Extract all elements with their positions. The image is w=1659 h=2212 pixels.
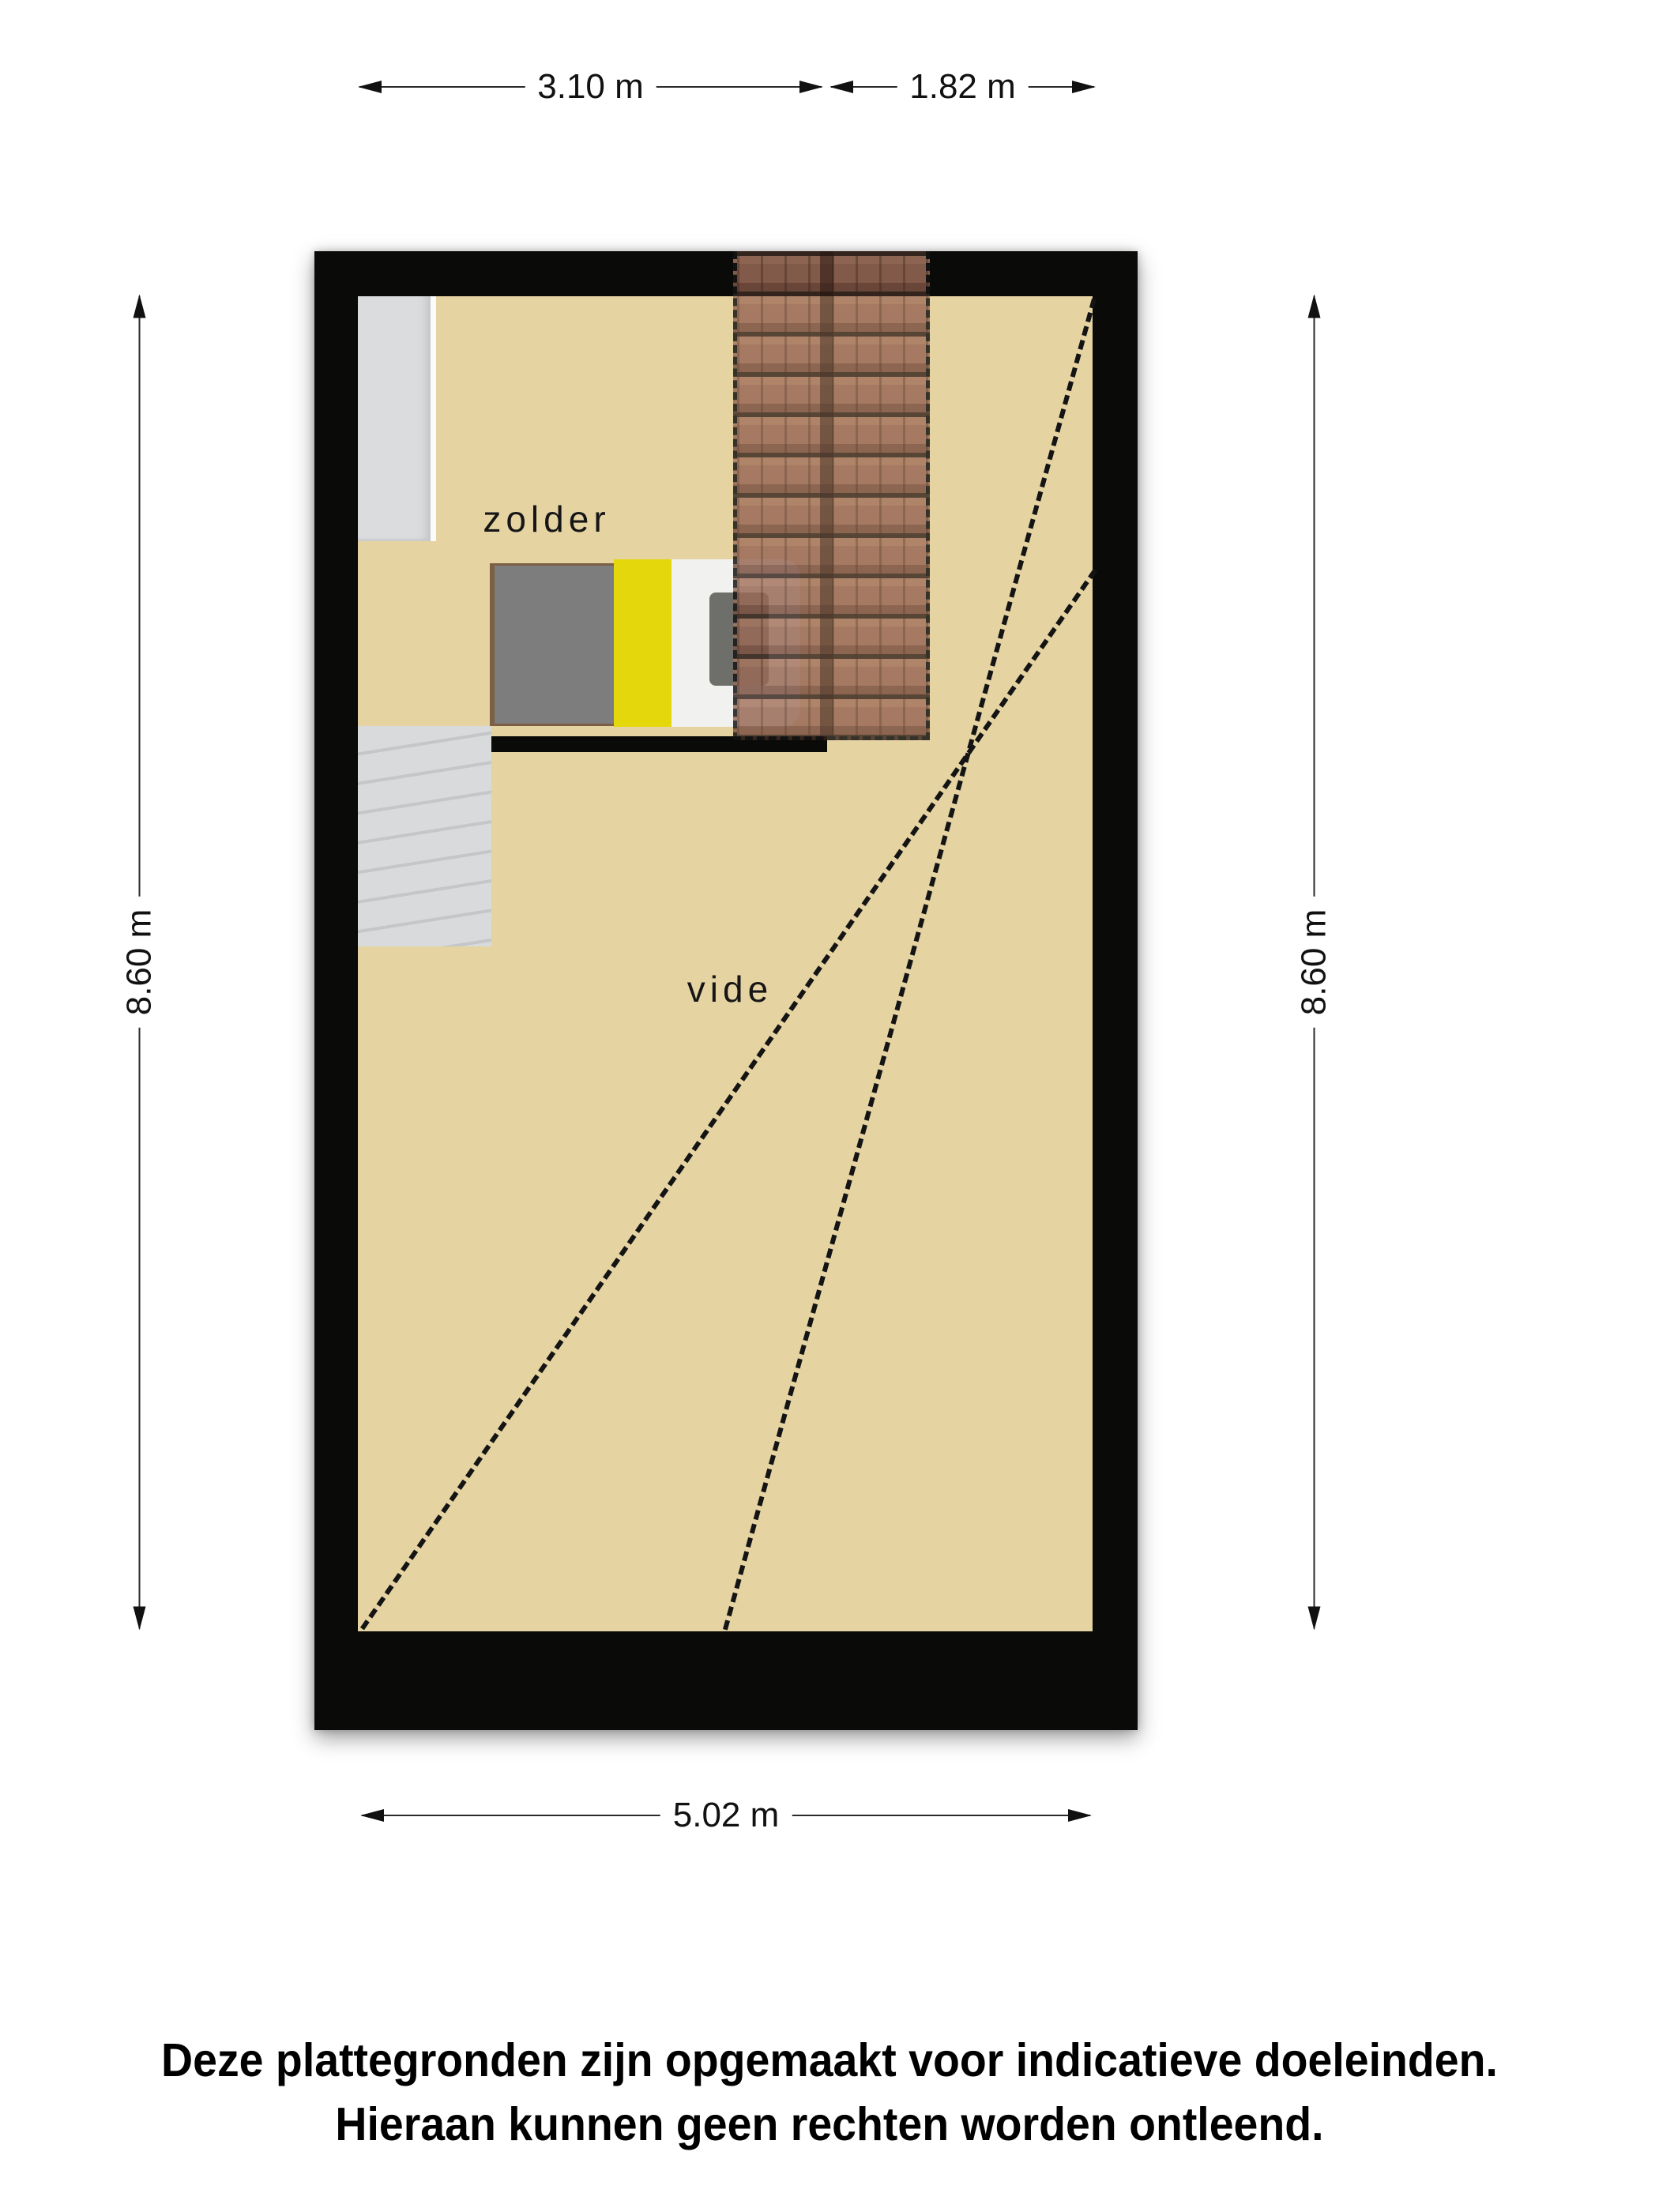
roof-tiles [733, 251, 930, 740]
floorplan-page: 3.10 m 1.82 m 8.60 m 8.60 m 5.02 m [0, 0, 1659, 2212]
floor-plan: zolder vide [314, 251, 1138, 1730]
dimension-label: 8.60 m [1295, 897, 1334, 1029]
arrow-up-icon [1308, 295, 1321, 318]
arrow-down-icon [1308, 1607, 1321, 1631]
disclaimer-line-2: Hieraan kunnen geen rechten worden ontle… [50, 2093, 1609, 2157]
dimension-label: 3.10 m [525, 67, 656, 107]
arrow-left-icon [358, 81, 382, 93]
arrow-left-icon [360, 1809, 384, 1822]
disclaimer-line-1: Deze plattegronden zijn opgemaakt voor i… [50, 2029, 1609, 2093]
dimension-label: 8.60 m [120, 897, 160, 1029]
arrow-right-icon [1068, 1809, 1092, 1822]
closet [358, 296, 436, 541]
dimension-label: 1.82 m [897, 67, 1029, 107]
disclaimer-text: Deze plattegronden zijn opgemaakt voor i… [50, 2029, 1609, 2157]
attic-floor [358, 296, 1093, 1631]
arrow-left-icon [829, 81, 853, 93]
arrow-right-icon [1072, 81, 1096, 93]
bed-blanket [614, 559, 671, 727]
bed-duvet [490, 563, 619, 726]
room-label-zolder: zolder [483, 498, 610, 540]
dimension-label: 5.02 m [660, 1796, 792, 1835]
arrow-down-icon [134, 1607, 146, 1631]
arrow-up-icon [134, 295, 146, 318]
room-label-vide: vide [687, 968, 773, 1010]
staircase [358, 726, 491, 946]
arrow-right-icon [799, 81, 823, 93]
